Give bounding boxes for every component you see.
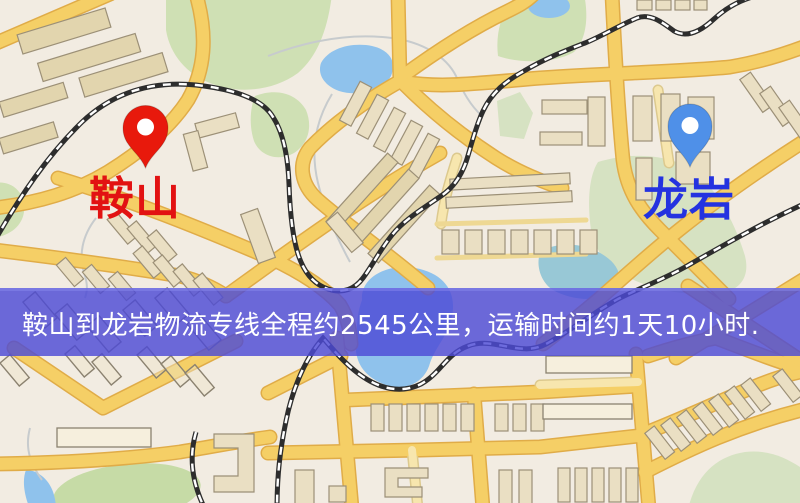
map-canvas (0, 0, 800, 503)
destination-city-label: 龙岩 (643, 177, 735, 222)
origin-city-label: 鞍山 (89, 176, 181, 221)
logistics-route-map: 鞍山 龙岩 鞍山到龙岩物流专线全程约2545公里，运输时间约1天10小时. (0, 0, 800, 503)
route-info-text: 鞍山到龙岩物流专线全程约2545公里，运输时间约1天10小时. (22, 305, 760, 342)
route-info-banner: 鞍山到龙岩物流专线全程约2545公里，运输时间约1天10小时. (0, 288, 800, 356)
destination-pin-hole (682, 117, 699, 134)
origin-pin-hole (137, 119, 154, 136)
